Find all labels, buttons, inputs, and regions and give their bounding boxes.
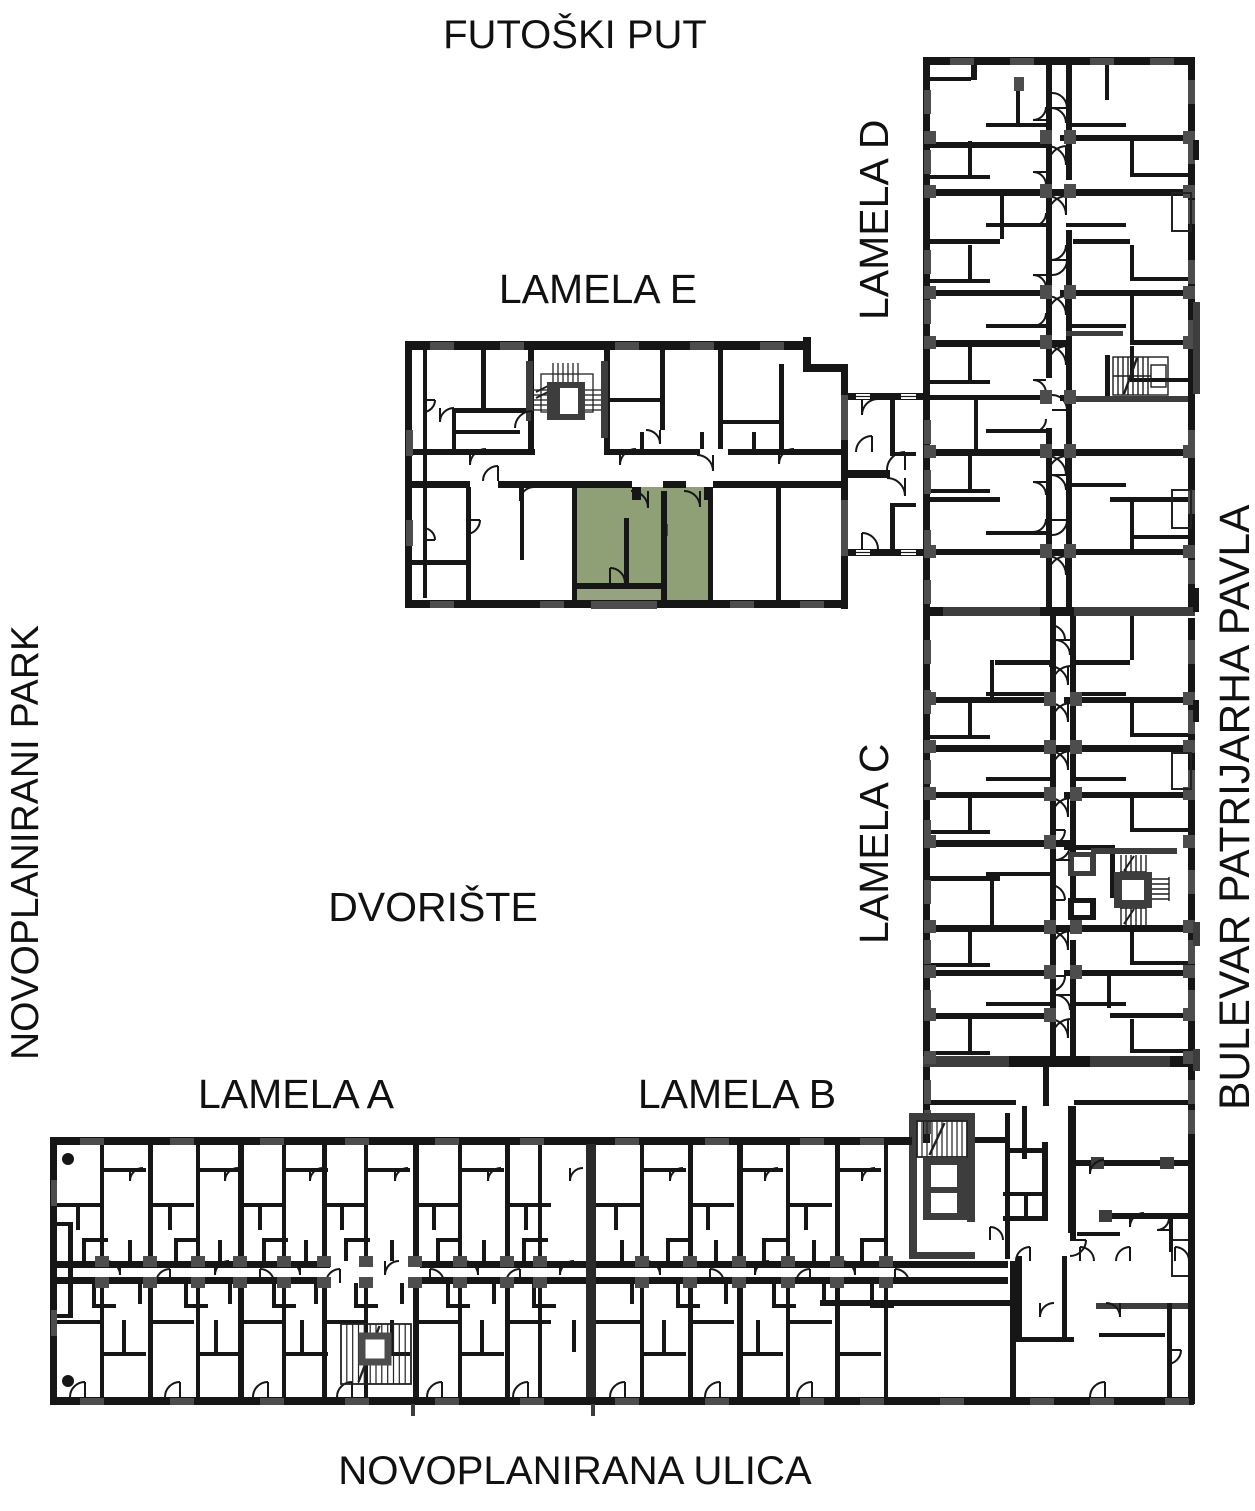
- svg-text:LAMELA D: LAMELA D: [851, 119, 897, 320]
- svg-text:NOVOPLANIRANA ULICA: NOVOPLANIRANA ULICA: [338, 1448, 812, 1493]
- svg-text:LAMELA E: LAMELA E: [499, 266, 697, 312]
- svg-text:BULEVAR PATRIJARHA PAVLA: BULEVAR PATRIJARHA PAVLA: [1212, 504, 1255, 1110]
- svg-text:DVORIŠTE: DVORIŠTE: [328, 884, 538, 930]
- svg-text:FUTOŠKI PUT: FUTOŠKI PUT: [443, 12, 707, 57]
- svg-text:NOVOPLANIRANI PARK: NOVOPLANIRANI PARK: [4, 625, 47, 1060]
- svg-text:LAMELA C: LAMELA C: [851, 743, 897, 944]
- svg-text:LAMELA B: LAMELA B: [638, 1071, 836, 1117]
- svg-text:LAMELA A: LAMELA A: [198, 1071, 395, 1117]
